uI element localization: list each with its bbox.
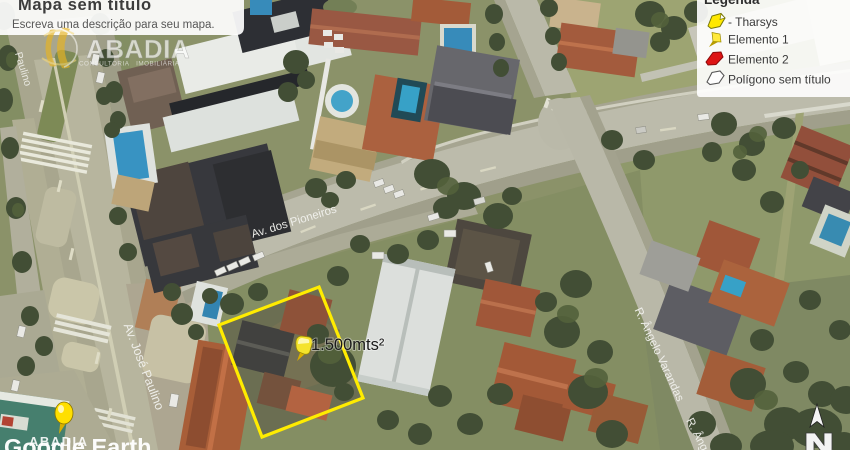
svg-text:Elemento 2: Elemento 2 [728, 53, 789, 67]
svg-text:1.500mts²: 1.500mts² [311, 336, 385, 354]
svg-text:Mapa sem título: Mapa sem título [18, 0, 152, 14]
svg-text:ABADIA: ABADIA [86, 34, 190, 64]
svg-text:Escreva uma descrição para seu: Escreva uma descrição para seu mapa. [12, 19, 215, 31]
svg-text:CONSULTORIA IMOBILIÁRIA: CONSULTORIA IMOBILIÁRIA [79, 59, 180, 68]
svg-text:Elemento 1: Elemento 1 [728, 33, 789, 47]
svg-text:- Tharsys: - Tharsys [728, 15, 778, 29]
svg-text:Polígono sem título: Polígono sem título [728, 73, 831, 87]
svg-text:Legenda: Legenda [704, 0, 760, 7]
svg-text:Google Earth: Google Earth [4, 434, 152, 450]
